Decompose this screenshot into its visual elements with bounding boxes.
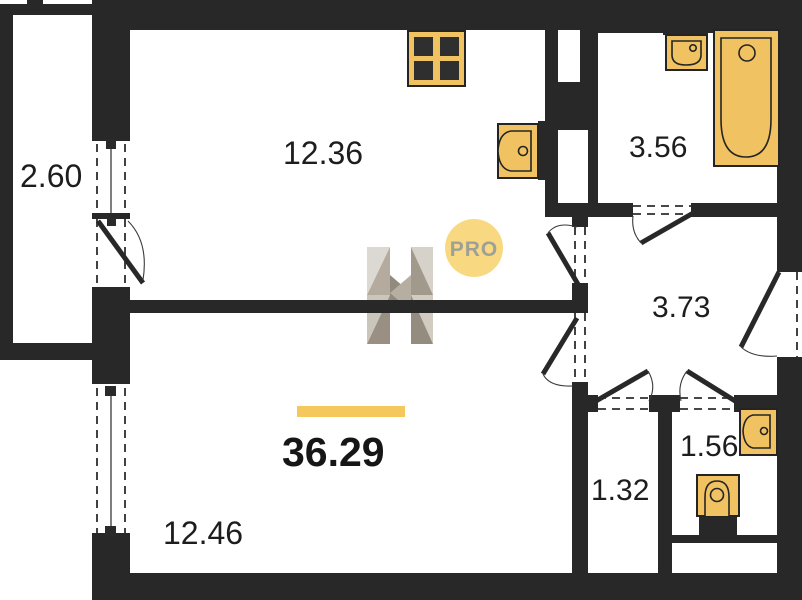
wall-segment [128,300,588,313]
wall-segment [92,573,802,600]
wall-segment [649,395,680,412]
balcony-door-leaf [98,221,143,283]
wall-segment [588,395,598,412]
bathtub-icon [714,30,779,166]
kitchen-hallway-door [548,225,585,286]
room-label-hallway: 3.73 [652,291,710,324]
washbasin-icon [663,26,708,70]
wall-segment [777,30,802,272]
pro-badge: PRO [445,219,503,277]
wall-segment [691,203,777,217]
wc-washbasin-icon [740,406,780,456]
room-label-bathroom: 3.56 [629,131,687,164]
bedroom-window [97,386,125,536]
wall-segment [92,533,130,600]
wall-segment [92,28,130,141]
total-area-accent-bar [297,406,405,417]
h-logo [367,247,433,344]
wall-segment [92,287,130,384]
wall-segment [0,4,93,15]
wall-segment [658,412,672,573]
wall-segment [572,394,588,573]
entrance-door [741,272,797,357]
room-label-kitchen: 12.36 [283,135,363,171]
room-label-storage: 1.32 [591,474,649,507]
wall-segment [777,357,802,600]
watermark: PRO [367,219,503,344]
storage-door [596,371,653,409]
total-area: 36.29 [282,406,405,475]
bedroom-door [543,313,585,386]
door-jamb [572,217,588,227]
stove-icon [408,22,465,86]
wall-segment [588,30,598,203]
wall-segment [580,30,588,82]
wall-segment [27,0,43,15]
wc-door [680,371,740,409]
room-label-balcony: 2.60 [20,158,82,194]
wall-segment [0,343,93,360]
wall-segment [545,203,633,217]
kitchen-sink-icon [498,121,548,180]
toilet-icon [697,475,739,536]
room-label-bedroom: 12.46 [163,515,243,551]
balcony-window [97,139,125,213]
floor-plan: PRO [0,0,802,600]
wall-segment [572,283,588,313]
balcony-door-opening [97,218,144,287]
wall-segment [0,4,13,360]
floor-plan-canvas: PRO [0,0,802,600]
pro-badge-label: PRO [450,238,499,261]
bathroom-door [633,206,695,243]
wall-segment [558,82,588,130]
door-jamb [572,382,588,394]
wall-segment [672,535,777,543]
room-label-wc: 1.56 [680,430,738,463]
total-area-value: 36.29 [282,429,385,475]
